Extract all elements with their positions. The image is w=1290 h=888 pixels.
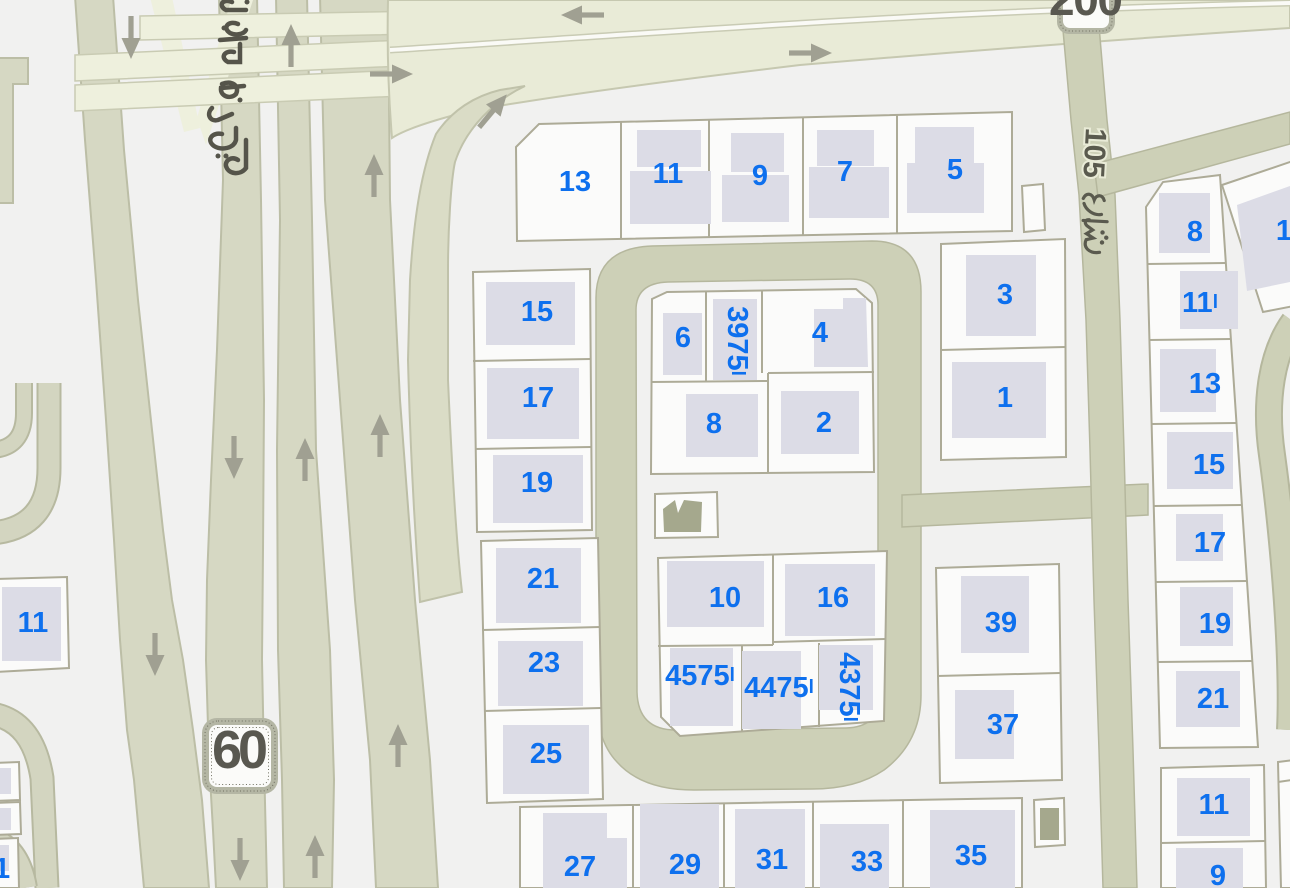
svg-text:60: 60 — [212, 720, 268, 780]
svg-text:2: 2 — [816, 407, 832, 439]
svg-text:7: 7 — [837, 156, 853, 188]
svg-text:4: 4 — [812, 317, 828, 349]
svg-text:13: 13 — [559, 166, 591, 198]
svg-text:17: 17 — [522, 382, 554, 414]
svg-text:11: 11 — [1199, 789, 1230, 821]
svg-text:10: 10 — [709, 582, 741, 614]
svg-text:16: 16 — [817, 582, 849, 614]
svg-text:21: 21 — [527, 563, 559, 595]
svg-text:17: 17 — [1194, 527, 1226, 559]
svg-text:200: 200 — [1049, 0, 1123, 25]
svg-text:33: 33 — [851, 846, 883, 878]
svg-text:8: 8 — [1187, 216, 1203, 248]
svg-text:4475l: 4475l — [744, 672, 814, 704]
svg-text:8: 8 — [706, 408, 722, 440]
svg-text:105: 105 — [1076, 127, 1112, 179]
svg-text:4375l: 4375l — [833, 652, 865, 722]
svg-text:11: 11 — [653, 158, 684, 190]
svg-text:3: 3 — [997, 279, 1013, 311]
svg-text:39: 39 — [985, 607, 1017, 639]
svg-text:27: 27 — [564, 851, 596, 883]
svg-text:19: 19 — [521, 467, 553, 499]
svg-text:11: 11 — [18, 607, 49, 639]
svg-text:9: 9 — [1210, 860, 1226, 888]
svg-text:31: 31 — [756, 844, 788, 876]
svg-text:4575l: 4575l — [665, 660, 735, 692]
svg-text:37: 37 — [987, 709, 1019, 741]
svg-text:21: 21 — [1197, 683, 1229, 715]
svg-text:19: 19 — [1199, 608, 1231, 640]
svg-text:5: 5 — [947, 154, 963, 186]
svg-text:3975l: 3975l — [721, 306, 753, 376]
svg-text:1: 1 — [0, 853, 10, 885]
svg-text:1: 1 — [1276, 215, 1290, 247]
svg-text:29: 29 — [669, 849, 701, 881]
svg-text:35: 35 — [955, 840, 987, 872]
svg-text:6: 6 — [675, 322, 691, 354]
svg-text:9: 9 — [752, 160, 768, 192]
svg-text:13: 13 — [1189, 368, 1221, 400]
svg-text:1: 1 — [997, 382, 1013, 414]
svg-text:15: 15 — [1193, 449, 1225, 481]
svg-text:11l: 11l — [1182, 287, 1218, 319]
svg-text:23: 23 — [528, 647, 560, 679]
svg-text:25: 25 — [530, 738, 562, 770]
svg-text:15: 15 — [521, 296, 553, 328]
